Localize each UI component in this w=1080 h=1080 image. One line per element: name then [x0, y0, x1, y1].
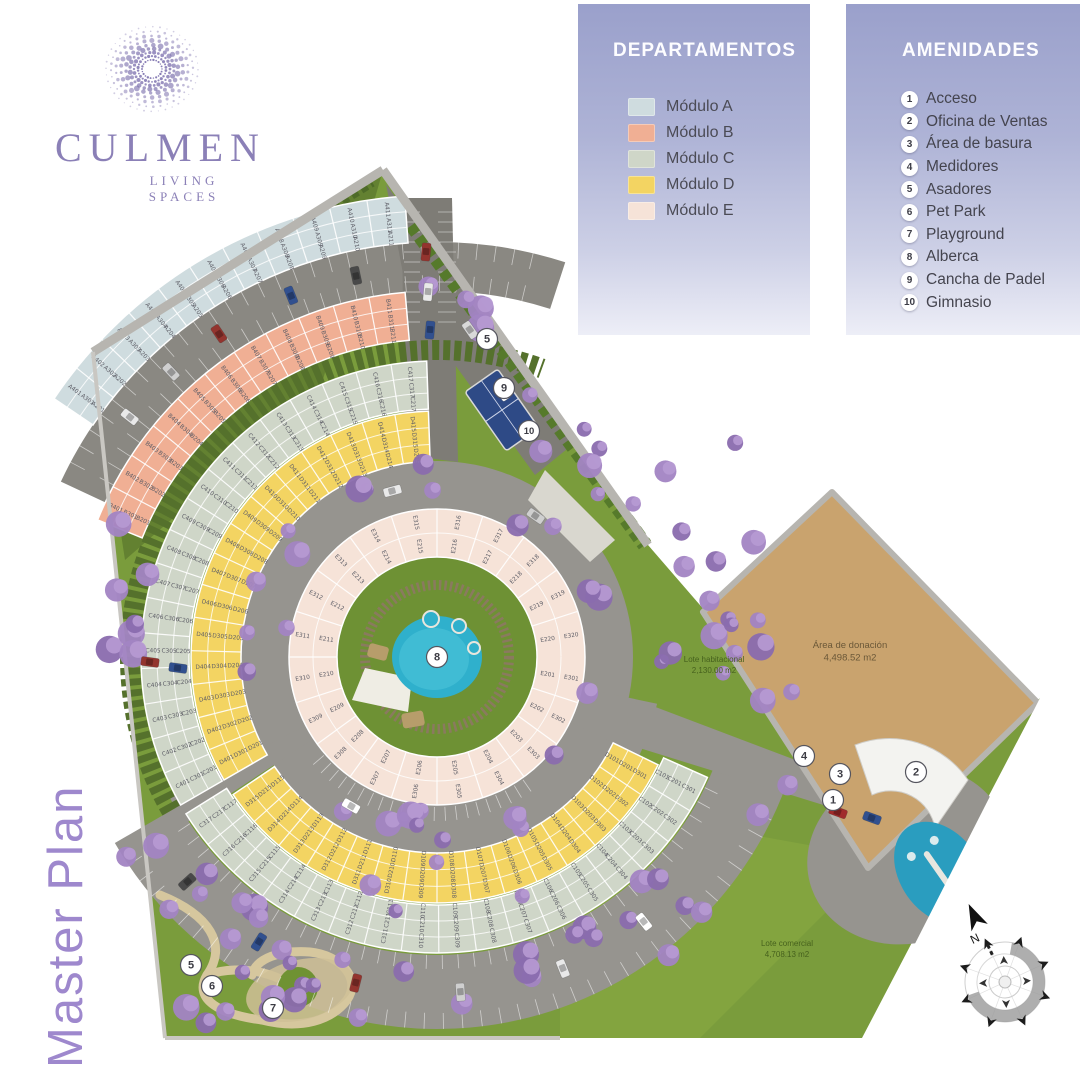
amenity-number-badge: 2: [901, 113, 918, 130]
amenity-row-1: 1Acceso: [901, 88, 1048, 111]
amenity-number-badge: 5: [901, 181, 918, 198]
svg-text:9: 9: [501, 382, 507, 394]
amenity-label: Asadores: [926, 181, 991, 199]
svg-text:1: 1: [830, 794, 836, 806]
module-legend-label: Módulo D: [666, 176, 734, 194]
svg-text:D308: D308: [449, 883, 456, 899]
parked-car: [425, 321, 436, 340]
module-legend-row-a: Módulo A: [628, 94, 734, 120]
svg-text:5: 5: [484, 333, 490, 345]
brand-tagline: LIVING SPACES: [55, 173, 255, 205]
brand-name: CULMEN: [55, 124, 255, 171]
parked-car: [423, 283, 434, 302]
svg-text:D404: D404: [195, 664, 211, 671]
map-marker-3[interactable]: 3: [830, 764, 851, 785]
amenity-label: Pet Park: [926, 203, 985, 221]
map-marker-5[interactable]: 5: [477, 329, 498, 350]
departamentos-panel: DEPARTAMENTOS Módulo AMódulo BMódulo CMó…: [578, 4, 810, 335]
map-marker-1[interactable]: 1: [823, 790, 844, 811]
svg-text:D209: D209: [418, 866, 425, 882]
parked-car: [421, 243, 432, 262]
svg-text:3: 3: [837, 768, 843, 780]
amenity-row-8: 8Alberca: [901, 246, 1048, 269]
svg-text:Área de donación: Área de donación: [813, 640, 887, 651]
map-marker-7[interactable]: 7: [263, 998, 284, 1019]
svg-text:C210: C210: [418, 917, 425, 933]
svg-text:6: 6: [209, 980, 215, 992]
module-legend-row-c: Módulo C: [628, 146, 734, 172]
map-marker-6[interactable]: 6: [202, 976, 223, 997]
amenity-label: Playground: [926, 226, 1004, 244]
svg-text:Lote habitacional: Lote habitacional: [684, 655, 745, 664]
amenity-label: Oficina de Ventas: [926, 113, 1048, 131]
svg-text:C109: C109: [451, 903, 458, 919]
svg-text:4,708.13 m2: 4,708.13 m2: [765, 950, 810, 959]
svg-text:5: 5: [188, 959, 194, 971]
bottom-margin: [0, 1040, 1080, 1080]
amenity-number-badge: 1: [901, 91, 918, 108]
svg-text:C309: C309: [453, 933, 460, 949]
amenity-label: Área de basura: [926, 135, 1032, 153]
amenity-number-badge: 9: [901, 272, 918, 289]
svg-text:Lote comercial: Lote comercial: [761, 939, 813, 948]
module-legend-label: Módulo C: [666, 150, 734, 168]
logo-dot-spiral-icon: [55, 16, 255, 120]
amenity-number-badge: 8: [901, 249, 918, 266]
module-legend-row-e: Módulo E: [628, 198, 734, 224]
module-legend-label: Módulo A: [666, 98, 733, 116]
parked-car: [455, 983, 465, 1002]
amenity-row-10: 10Gimnasio: [901, 291, 1048, 314]
amenity-row-4: 4Medidores: [901, 156, 1048, 179]
svg-text:C205: C205: [175, 649, 191, 655]
svg-text:D108: D108: [447, 851, 454, 867]
module-legend-label: Módulo B: [666, 124, 734, 142]
map-marker-5[interactable]: 5: [181, 955, 202, 976]
svg-text:8: 8: [434, 651, 440, 663]
module-a-swatch-icon: [628, 98, 655, 116]
amenidades-panel: AMENIDADES 1Acceso2Oficina de Ventas3Áre…: [846, 4, 1080, 335]
map-marker-4[interactable]: 4: [794, 746, 815, 767]
amenity-number-badge: 4: [901, 159, 918, 176]
map-marker-9[interactable]: 9: [494, 378, 515, 399]
amenity-row-9: 9Cancha de Padel: [901, 269, 1048, 292]
svg-text:4,498.52 m2: 4,498.52 m2: [824, 653, 877, 664]
svg-text:2: 2: [913, 766, 919, 778]
amenities-list: 1Acceso2Oficina de Ventas3Área de basura…: [901, 88, 1048, 314]
svg-text:D309: D309: [417, 882, 424, 898]
amenity-number-badge: 7: [901, 226, 918, 243]
svg-text:C310: C310: [417, 933, 424, 949]
amenity-label: Medidores: [926, 158, 998, 176]
svg-text:10: 10: [524, 426, 535, 437]
master-plan-watermark: Master Plan: [38, 738, 94, 1068]
module-legend-row-b: Módulo B: [628, 120, 734, 146]
module-d-swatch-icon: [628, 176, 655, 194]
culmen-logo: CULMEN LIVING SPACES: [55, 16, 255, 205]
svg-text:2,130.00 m2: 2,130.00 m2: [692, 666, 737, 675]
svg-text:C405: C405: [145, 648, 161, 654]
svg-text:4: 4: [801, 750, 808, 762]
amenity-row-3: 3Área de basura: [901, 133, 1048, 156]
amenity-number-badge: 3: [901, 136, 918, 153]
amenity-label: Cancha de Padel: [926, 271, 1045, 289]
module-e-swatch-icon: [628, 202, 655, 220]
map-marker-10[interactable]: 10: [519, 421, 540, 442]
module-legend-row-d: Módulo D: [628, 172, 734, 198]
map-marker-8[interactable]: 8: [427, 647, 448, 668]
module-b-swatch-icon: [628, 124, 655, 142]
module-legend-list: Módulo AMódulo BMódulo CMódulo DMódulo E: [628, 94, 734, 224]
amenity-row-7: 7Playground: [901, 224, 1048, 247]
amenity-row-6: 6Pet Park: [901, 201, 1048, 224]
amenity-number-badge: 10: [901, 294, 918, 311]
svg-text:D208: D208: [448, 867, 455, 883]
amenity-label: Acceso: [926, 90, 977, 108]
area-donacion-label: Área de donación4,498.52 m2: [813, 640, 887, 664]
module-legend-label: Módulo E: [666, 202, 734, 220]
amenity-row-2: 2Oficina de Ventas: [901, 111, 1048, 134]
svg-text:C209: C209: [452, 917, 459, 933]
map-marker-2[interactable]: 2: [906, 762, 927, 783]
amenity-label: Gimnasio: [926, 294, 991, 312]
amenity-number-badge: 6: [901, 204, 918, 221]
module-c-swatch-icon: [628, 150, 655, 168]
svg-text:7: 7: [270, 1002, 276, 1014]
amenity-row-5: 5Asadores: [901, 178, 1048, 201]
svg-text:D109: D109: [419, 851, 426, 867]
amenity-label: Alberca: [926, 248, 979, 266]
amenidades-title: AMENIDADES: [902, 40, 1040, 62]
departamentos-title: DEPARTAMENTOS: [613, 40, 796, 62]
svg-text:D304: D304: [211, 664, 227, 671]
svg-text:C110: C110: [418, 903, 425, 919]
